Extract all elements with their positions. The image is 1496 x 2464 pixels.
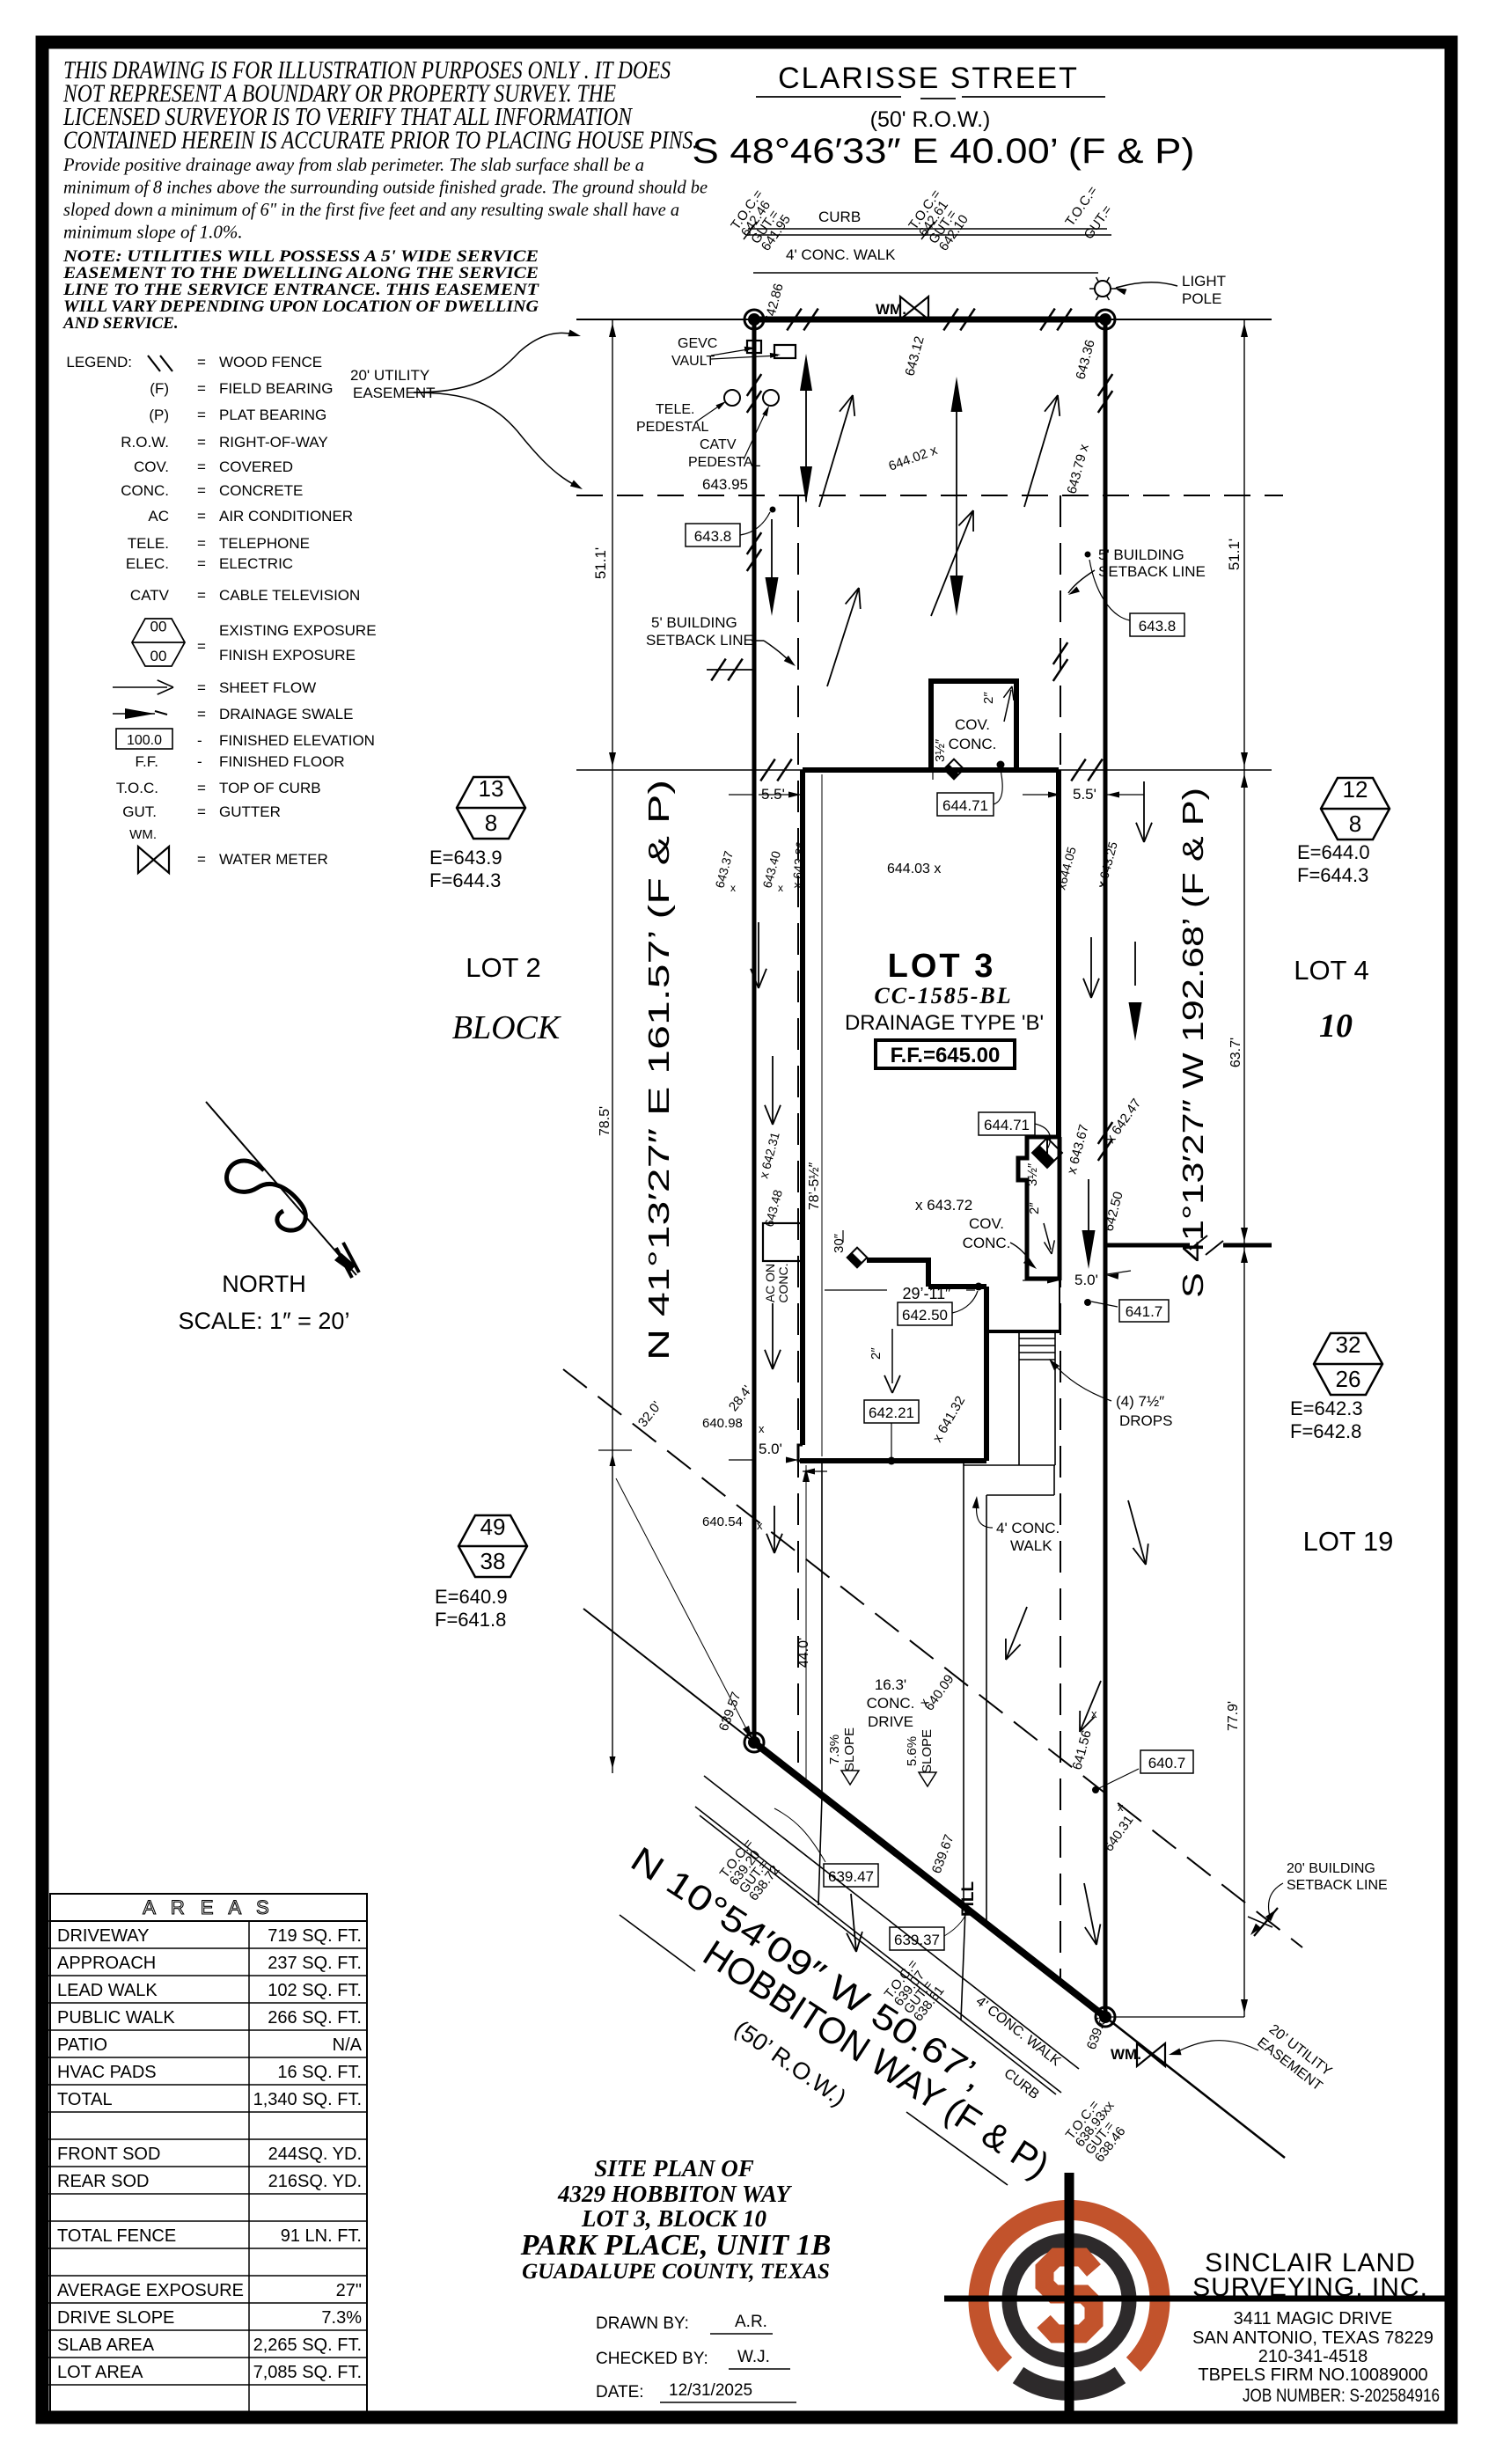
svg-text:(F): (F) — [150, 380, 169, 397]
svg-text:642.21: 642.21 — [869, 1404, 914, 1421]
svg-text:8: 8 — [485, 810, 497, 836]
svg-text:R.O.W.: R.O.W. — [121, 434, 169, 451]
svg-text:VAULT: VAULT — [671, 354, 715, 369]
svg-text:91 LN. FT.: 91 LN. FT. — [281, 2226, 362, 2246]
svg-text:PEDESTAL: PEDESTAL — [636, 420, 709, 435]
svg-text:LOT 19: LOT 19 — [1303, 1526, 1394, 1557]
svg-text:640.98: 640.98 — [702, 1416, 743, 1431]
svg-text:SITE PLAN OF: SITE PLAN OF — [594, 2155, 754, 2182]
svg-text:SCALE: 1″ = 20’: SCALE: 1″ = 20’ — [179, 1308, 350, 1334]
svg-text:E=640.9: E=640.9 — [435, 1586, 508, 1608]
svg-text:x: x — [730, 882, 736, 894]
svg-text:643.8: 643.8 — [694, 528, 732, 545]
svg-text:CURB: CURB — [818, 209, 861, 225]
svg-text:SETBACK LINE: SETBACK LINE — [1098, 563, 1206, 580]
svg-text:DATE:: DATE: — [596, 2383, 644, 2402]
svg-text:=: = — [197, 458, 206, 475]
svg-text:A R E A S: A R E A S — [143, 1896, 274, 1918]
svg-text:minimum slope of 1.0%.: minimum slope of 1.0%. — [63, 222, 243, 243]
svg-text:719 SQ. FT.: 719 SQ. FT. — [268, 1926, 362, 1946]
svg-text:=: = — [197, 851, 206, 868]
svg-text:CONC.: CONC. — [963, 1235, 1011, 1251]
svg-text:COV.: COV. — [955, 716, 990, 733]
svg-text:TOP OF CURB: TOP OF CURB — [219, 780, 321, 796]
svg-text:LOT AREA: LOT AREA — [57, 2363, 143, 2382]
svg-text:=: = — [197, 535, 206, 552]
svg-text:AC ON: AC ON — [763, 1264, 777, 1302]
svg-text:CLARISSE STREET: CLARISSE STREET — [778, 62, 1079, 95]
svg-text:(P): (P) — [149, 407, 169, 423]
svg-text:3411 MAGIC DRIVE: 3411 MAGIC DRIVE — [1234, 2309, 1393, 2328]
svg-text:32: 32 — [1336, 1331, 1361, 1358]
svg-text:Provide positive drainage away: Provide positive drainage away from slab… — [62, 154, 644, 175]
svg-text:=: = — [197, 587, 206, 604]
svg-text:F=641.8: F=641.8 — [435, 1609, 506, 1631]
svg-text:2″: 2″ — [981, 692, 996, 704]
svg-text:26: 26 — [1336, 1366, 1361, 1392]
svg-text:78.5': 78.5' — [598, 1106, 612, 1136]
svg-text:CABLE TELEVISION: CABLE TELEVISION — [219, 587, 360, 604]
svg-text:=: = — [197, 380, 206, 397]
svg-text:77.9': 77.9' — [1226, 1701, 1241, 1731]
svg-text:(4) 7½″: (4) 7½″ — [1116, 1393, 1164, 1410]
svg-text:DRAINAGE TYPE 'B': DRAINAGE TYPE 'B' — [845, 1011, 1044, 1035]
svg-text:00: 00 — [150, 648, 167, 664]
svg-text:S 48°46′33″ E 40.00’ (F &: S 48°46′33″ E 40.00’ (F & P) — [693, 132, 1195, 171]
svg-text:F=644.3: F=644.3 — [1297, 864, 1368, 886]
svg-text:EASEMENT TO THE DWELLING A: EASEMENT TO THE DWELLING ALONG THE SERVI… — [62, 264, 539, 282]
svg-text:LOT 3: LOT 3 — [888, 948, 996, 985]
svg-text:CHECKED BY:: CHECKED BY: — [596, 2350, 708, 2368]
svg-text:DRAWN BY:: DRAWN BY: — [596, 2314, 689, 2333]
svg-text:5' BUILDING: 5' BUILDING — [651, 614, 737, 631]
svg-text:LINE TO THE SERVICE ENTRAN: LINE TO THE SERVICE ENTRANCE. THIS EASEM… — [62, 281, 540, 299]
svg-text:LOT 4: LOT 4 — [1294, 955, 1369, 986]
svg-text:3½″: 3½″ — [1025, 1162, 1040, 1186]
svg-text:sloped down a minimum of 6" in: sloped down a minimum of 6" in the first… — [63, 199, 679, 220]
svg-text:COVERED: COVERED — [219, 458, 293, 475]
svg-text:A.R.: A.R. — [735, 2313, 767, 2331]
svg-text:640.54: 640.54 — [702, 1514, 743, 1529]
svg-text:AIR CONDITIONER: AIR CONDITIONER — [219, 508, 353, 524]
svg-text:AND SERVICE.: AND SERVICE. — [62, 314, 179, 333]
svg-text:CONCRETE: CONCRETE — [219, 482, 303, 499]
svg-text:2″: 2″ — [1027, 1202, 1042, 1214]
svg-text:=: = — [197, 780, 206, 796]
svg-text:641.7: 641.7 — [1126, 1303, 1163, 1320]
svg-text:100.0: 100.0 — [127, 733, 162, 748]
svg-text:AVERAGE EXPOSURE: AVERAGE EXPOSURE — [57, 2281, 244, 2300]
svg-text:DRIVE: DRIVE — [868, 1713, 913, 1730]
svg-text:TOTAL FENCE: TOTAL FENCE — [57, 2226, 176, 2246]
svg-text:266 SQ. FT.: 266 SQ. FT. — [268, 2008, 362, 2028]
svg-text:20' UTILITY: 20' UTILITY — [350, 367, 429, 384]
svg-text:WM.: WM. — [129, 827, 157, 842]
svg-text:FRONT SOD: FRONT SOD — [57, 2145, 160, 2164]
svg-text:CONC.: CONC. — [949, 736, 997, 752]
svg-text:LIGHT: LIGHT — [1182, 273, 1226, 290]
svg-text:minimum of 8 inches above the: minimum of 8 inches above the surroundin… — [63, 177, 708, 198]
svg-text:SHEET FLOW: SHEET FLOW — [219, 679, 316, 696]
svg-text:TELE.: TELE. — [656, 402, 694, 417]
svg-text:WATER METER: WATER METER — [219, 851, 328, 868]
svg-text:8: 8 — [1349, 810, 1361, 837]
svg-text:10: 10 — [1319, 1008, 1353, 1045]
svg-text:FINISHED FLOOR: FINISHED FLOOR — [219, 753, 345, 770]
svg-text:16 SQ. FT.: 16 SQ. FT. — [277, 2063, 362, 2082]
svg-text:2,265 SQ. FT.: 2,265 SQ. FT. — [253, 2336, 362, 2355]
svg-text:SETBACK LINE: SETBACK LINE — [646, 632, 753, 649]
svg-text:PEDESTAL: PEDESTAL — [688, 455, 761, 470]
svg-text:RIGHT-OF-WAY: RIGHT-OF-WAY — [219, 434, 328, 451]
svg-text:GEVC: GEVC — [678, 336, 717, 351]
svg-text:E=642.3: E=642.3 — [1290, 1397, 1363, 1419]
svg-text:CONC.: CONC. — [121, 482, 169, 499]
svg-text:N 41°13′27″ E 161.57’ (F: N 41°13′27″ E 161.57’ (F & P) — [642, 780, 675, 1360]
svg-text:7,085 SQ. FT.: 7,085 SQ. FT. — [253, 2363, 362, 2382]
svg-text:x: x — [759, 1422, 765, 1435]
svg-text:644.71: 644.71 — [942, 797, 988, 814]
svg-text:GUT.: GUT. — [122, 803, 157, 820]
svg-text:5.0': 5.0' — [759, 1441, 782, 1457]
svg-text:FIELD BEARING: FIELD BEARING — [219, 380, 333, 397]
svg-text:16.3': 16.3' — [875, 1676, 906, 1693]
svg-text:GUTTER: GUTTER — [219, 803, 281, 820]
svg-text:WALK: WALK — [1010, 1537, 1052, 1554]
svg-text:F=642.8: F=642.8 — [1290, 1420, 1361, 1442]
svg-text:TELE.: TELE. — [128, 535, 169, 552]
svg-text:CONC.: CONC. — [776, 1263, 790, 1302]
svg-text:WM.: WM. — [876, 301, 906, 318]
svg-text:210-341-4518: 210-341-4518 — [1258, 2347, 1368, 2366]
svg-text:=: = — [197, 555, 206, 572]
svg-text:30″: 30″ — [832, 1233, 847, 1253]
svg-text:CC-1585-BL: CC-1585-BL — [874, 983, 1012, 1008]
svg-text:1,340 SQ. FT.: 1,340 SQ. FT. — [253, 2090, 362, 2109]
svg-text:643.8: 643.8 — [1139, 618, 1177, 634]
svg-text:13: 13 — [479, 775, 504, 802]
svg-text:LEAD WALK: LEAD WALK — [57, 1981, 158, 2000]
svg-text:x: x — [1118, 1800, 1124, 1814]
svg-text:=: = — [197, 482, 206, 499]
svg-text:=: = — [197, 803, 206, 820]
svg-text:NORTH: NORTH — [222, 1271, 306, 1297]
svg-text:=: = — [197, 638, 206, 655]
svg-text:LEGEND:: LEGEND: — [66, 354, 132, 370]
svg-text:51.1': 51.1' — [592, 547, 609, 579]
svg-text:CONC.: CONC. — [867, 1695, 915, 1712]
svg-text:29’-11″: 29’-11″ — [902, 1285, 951, 1302]
svg-text:=: = — [197, 407, 206, 423]
svg-text:T.O.C.: T.O.C. — [116, 780, 158, 796]
svg-text:SLAB AREA: SLAB AREA — [57, 2336, 155, 2355]
svg-text:LOT 2: LOT 2 — [466, 952, 541, 983]
svg-text:LOT 3, BLOCK 10: LOT 3, BLOCK 10 — [581, 2205, 767, 2232]
svg-text:4' CONC.: 4' CONC. — [996, 1520, 1060, 1536]
svg-text:-: - — [197, 732, 202, 749]
svg-text:-: - — [197, 753, 202, 770]
svg-text:PUBLIC WALK: PUBLIC WALK — [57, 2008, 175, 2028]
svg-text:WOOD FENCE: WOOD FENCE — [219, 354, 322, 370]
svg-text:WILL VARY DEPENDING UPON L: WILL VARY DEPENDING UPON LOCATION OF DWE… — [63, 297, 539, 316]
svg-text:AC: AC — [148, 508, 169, 524]
svg-text:3½″: 3½″ — [933, 738, 948, 762]
svg-text:63.7': 63.7' — [1228, 1038, 1243, 1067]
svg-text:2″: 2″ — [869, 1347, 884, 1360]
svg-text:=: = — [197, 354, 206, 370]
svg-text:E=643.9: E=643.9 — [429, 847, 502, 869]
svg-text:20' BUILDING: 20' BUILDING — [1287, 1861, 1375, 1876]
svg-text:=: = — [197, 434, 206, 451]
svg-text:SETBACK LINE: SETBACK LINE — [1287, 1878, 1388, 1893]
svg-text:DRIVEWAY: DRIVEWAY — [57, 1926, 149, 1946]
svg-text:38: 38 — [480, 1548, 506, 1574]
svg-text:51.1': 51.1' — [1226, 539, 1243, 570]
svg-text:W.J.: W.J. — [737, 2348, 770, 2366]
svg-text:DRIVE SLOPE: DRIVE SLOPE — [57, 2308, 174, 2328]
svg-text:F.F.: F.F. — [136, 753, 158, 770]
svg-text:REAR SOD: REAR SOD — [57, 2172, 149, 2191]
svg-text:(50' R.O.W.): (50' R.O.W.) — [870, 107, 991, 132]
svg-text:12: 12 — [1343, 776, 1368, 803]
svg-text:=: = — [197, 706, 206, 722]
svg-text:244SQ. YD.: 244SQ. YD. — [268, 2145, 362, 2164]
svg-text:CONTAINED HEREIN IS ACCURATE P: CONTAINED HEREIN IS ACCURATE PRIOR TO PL… — [63, 128, 698, 155]
svg-text:ELECTRIC: ELECTRIC — [219, 555, 293, 572]
svg-text:102 SQ. FT.: 102 SQ. FT. — [268, 1981, 362, 2000]
svg-text:FINISHED ELEVATION: FINISHED ELEVATION — [219, 732, 375, 749]
svg-text:237 SQ. FT.: 237 SQ. FT. — [268, 1954, 362, 1973]
svg-text:F.F.=645.00: F.F.=645.00 — [891, 1044, 1001, 1067]
svg-text:SLOPE: SLOPE — [920, 1729, 935, 1773]
svg-text:NOTE: UTILITIES WILL POSSES: NOTE: UTILITIES WILL POSSESS A 5' WIDE S… — [62, 247, 539, 266]
svg-text:PATIO: PATIO — [57, 2035, 107, 2055]
svg-text:4' CONC. WALK: 4' CONC. WALK — [786, 246, 896, 263]
svg-text:5' BUILDING: 5' BUILDING — [1098, 546, 1184, 563]
svg-text:44.0': 44.0' — [796, 1638, 811, 1668]
svg-text:COV.: COV. — [134, 458, 169, 475]
svg-text:639.47: 639.47 — [828, 1868, 874, 1885]
svg-text:5.0': 5.0' — [1074, 1272, 1098, 1288]
svg-text:=: = — [197, 508, 206, 524]
svg-text:5.6%: 5.6% — [905, 1736, 920, 1766]
svg-text:PLAT BEARING: PLAT BEARING — [219, 407, 326, 423]
svg-text:ELEC.: ELEC. — [126, 555, 169, 572]
svg-text:DRAINAGE SWALE: DRAINAGE SWALE — [219, 706, 353, 722]
svg-text:639.37: 639.37 — [894, 1932, 940, 1948]
svg-text:HVAC PADS: HVAC PADS — [57, 2063, 157, 2082]
svg-text:JOB NUMBER: S-202584916: JOB NUMBER: S-202584916 — [1243, 2386, 1440, 2406]
svg-text:DROPS: DROPS — [1119, 1412, 1172, 1429]
svg-text:E=644.0: E=644.0 — [1297, 841, 1370, 863]
svg-text:COV.: COV. — [969, 1215, 1004, 1232]
svg-text:7.3%: 7.3% — [827, 1734, 842, 1764]
svg-text:SURVEYING, INC.: SURVEYING, INC. — [1192, 2273, 1428, 2302]
svg-text:N/A: N/A — [333, 2035, 363, 2055]
svg-text:BLOCK: BLOCK — [452, 1009, 561, 1046]
svg-text:640.7: 640.7 — [1148, 1755, 1186, 1771]
svg-text:F=644.3: F=644.3 — [429, 869, 501, 891]
svg-text:78’-5½″: 78’-5½″ — [807, 1162, 822, 1210]
svg-text:APPROACH: APPROACH — [57, 1954, 156, 1973]
svg-text:CATV: CATV — [130, 587, 170, 604]
svg-text:x 643.72: x 643.72 — [915, 1197, 972, 1214]
svg-text:216SQ. YD.: 216SQ. YD. — [268, 2172, 362, 2191]
svg-text:EXISTING EXPOSURE: EXISTING EXPOSURE — [219, 622, 377, 639]
svg-text:00: 00 — [150, 618, 167, 634]
svg-text:49: 49 — [480, 1514, 506, 1540]
svg-text:=: = — [197, 679, 206, 696]
svg-text:S 41°13′27″ W 192.68’ (F: S 41°13′27″ W 192.68’ (F & P) — [1177, 788, 1209, 1298]
svg-text:TELEPHONE: TELEPHONE — [219, 535, 310, 552]
svg-text:TBPELS FIRM NO.10089000: TBPELS FIRM NO.10089000 — [1198, 2365, 1427, 2385]
svg-text:27": 27" — [336, 2281, 362, 2300]
svg-text:SLOPE: SLOPE — [842, 1727, 857, 1771]
svg-text:644.71: 644.71 — [984, 1117, 1030, 1133]
svg-text:4329 HOBBITON WAY: 4329 HOBBITON WAY — [557, 2181, 793, 2207]
svg-text:TOTAL: TOTAL — [57, 2090, 113, 2109]
svg-text:5.5': 5.5' — [1073, 786, 1096, 803]
svg-text:643.95: 643.95 — [702, 476, 748, 493]
svg-text:POLE: POLE — [1182, 290, 1221, 307]
svg-text:7.3%: 7.3% — [321, 2308, 362, 2328]
svg-text:SAN ANTONIO, TEXAS 78229: SAN ANTONIO, TEXAS 78229 — [1192, 2328, 1434, 2348]
svg-text:644.03 x: 644.03 x — [887, 862, 941, 876]
svg-text:x: x — [778, 882, 783, 894]
svg-text:12/31/2025: 12/31/2025 — [669, 2381, 752, 2400]
svg-text:FINISH EXPOSURE: FINISH EXPOSURE — [219, 647, 356, 664]
svg-text:PARK PLACE, UNIT 1B: PARK PLACE, UNIT 1B — [520, 2229, 832, 2262]
svg-text:642.50: 642.50 — [902, 1307, 948, 1324]
svg-text:CATV: CATV — [700, 437, 737, 452]
svg-text:GUADALUPE COUNTY, TEXAS: GUADALUPE COUNTY, TEXAS — [522, 2260, 830, 2284]
